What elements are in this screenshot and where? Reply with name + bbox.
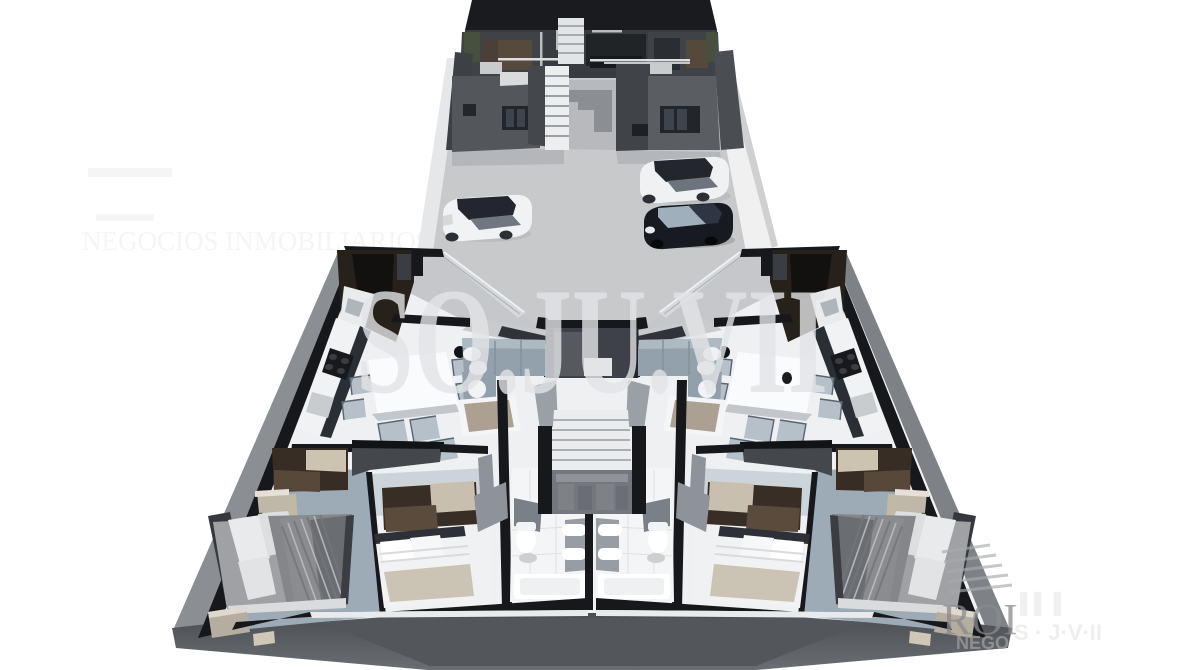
svg-text:NEGO: NEGO xyxy=(956,633,1009,653)
svg-text:S · J·V·II: S · J·V·II xyxy=(1014,620,1102,645)
svg-text:▌▌ ▌: ▌▌ ▌ xyxy=(1020,591,1068,617)
svg-text:SO.JU.VII: SO.JU.VII xyxy=(356,257,828,425)
